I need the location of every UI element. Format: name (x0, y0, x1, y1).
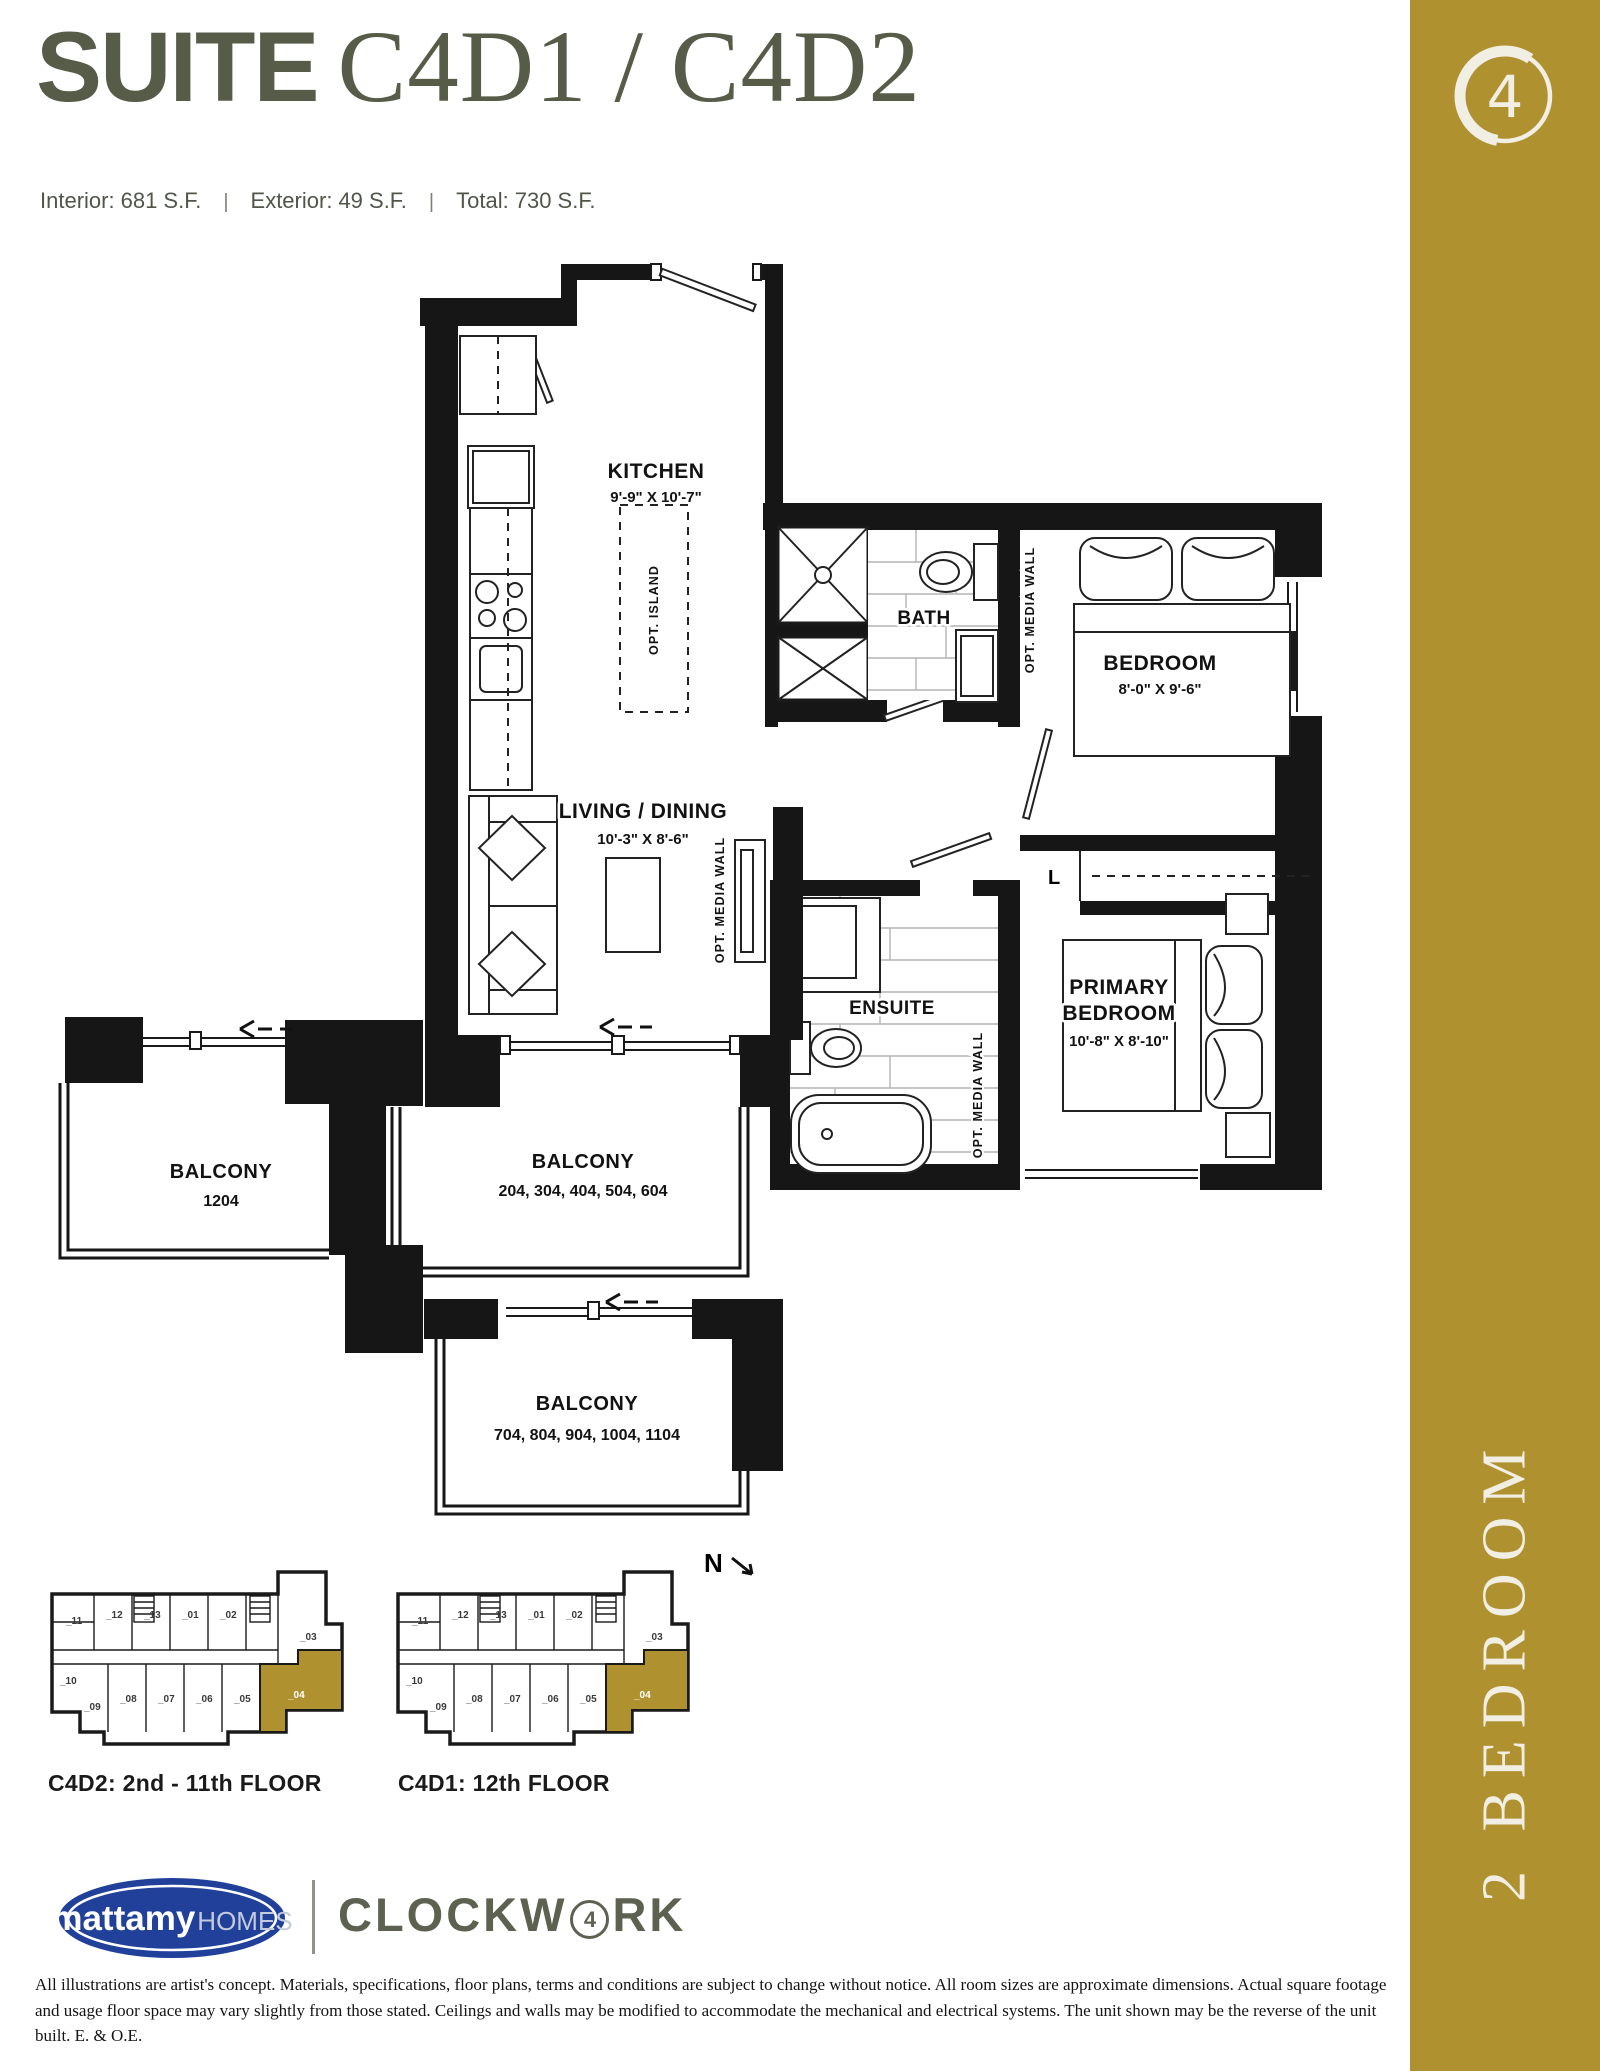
svg-text:_07: _07 (157, 1694, 175, 1705)
coffee-table (606, 858, 660, 952)
north-arrow: N (704, 1548, 752, 1578)
balcony1-units: 1204 (203, 1193, 239, 1210)
balcony2-units: 204, 304, 404, 504, 604 (498, 1183, 667, 1200)
svg-text:_01: _01 (527, 1610, 545, 1621)
title-suite-word: SUITE (36, 11, 318, 122)
svg-text:_05: _05 (579, 1694, 597, 1705)
stat-exterior: Exterior:49 S.F. (251, 188, 407, 214)
toilet-tank (974, 544, 998, 600)
svg-text:_10: _10 (59, 1676, 77, 1687)
svg-text:_09: _09 (429, 1702, 447, 1713)
balcony2-label: BALCONY (532, 1151, 635, 1173)
balcony3-label: BALCONY (536, 1393, 639, 1415)
bed-band (1074, 604, 1290, 632)
stat-interior: Interior:681 S.F. (40, 188, 201, 214)
kitchen-counter (470, 508, 532, 574)
primary-label-1: PRIMARY (1069, 976, 1169, 999)
svg-text:_08: _08 (465, 1694, 483, 1705)
kitchen-label: KITCHEN (608, 460, 705, 483)
svg-text:_12: _12 (451, 1610, 469, 1621)
bathtub (791, 1095, 931, 1173)
floorplan-drawing: OPT. ISLAND KITCHEN 9'-9" X 10'-7" BATH … (40, 250, 1340, 1590)
primary-door-leaf (911, 833, 991, 867)
circle-4-icon: 4 (1453, 44, 1557, 148)
legal-disclaimer: All illustrations are artist's concept. … (35, 1972, 1387, 2049)
arrow-living (600, 1019, 652, 1035)
primary-bed-band (1175, 940, 1201, 1111)
mattamy-logo: mattamyHOMES (50, 1872, 300, 1964)
area-stats: Interior:681 S.F. | Exterior:49 S.F. | T… (40, 188, 595, 214)
keyplate-caption-c4d1: C4D1: 12th FLOOR (398, 1770, 610, 1797)
bedroom-label: BEDROOM (1103, 652, 1216, 675)
pillow (1206, 1030, 1262, 1108)
svg-text:4: 4 (1487, 63, 1524, 131)
windows (143, 264, 1297, 1319)
primary-label-2: BEDROOM (1062, 1002, 1175, 1025)
balcony1-label: BALCONY (170, 1161, 273, 1183)
svg-text:_12: _12 (105, 1610, 123, 1621)
media-wall (773, 807, 803, 1040)
primary-bed (1063, 940, 1175, 1111)
svg-text:_13: _13 (489, 1610, 507, 1621)
kitchen-counter-lower (470, 700, 532, 790)
svg-text:_01: _01 (181, 1610, 199, 1621)
svg-text:_13: _13 (143, 1610, 161, 1621)
logo-divider (312, 1880, 315, 1954)
ensuite-fixtures (790, 896, 998, 1173)
entry-door-leaf (660, 269, 756, 311)
kitchen-dims: 9'-9" X 10'-7" (610, 489, 701, 506)
svg-text:_06: _06 (541, 1694, 559, 1705)
opt-media-wall-living-label: OPT. MEDIA WALL (713, 837, 727, 963)
primary-dims: 10'-8" X 8'-10" (1069, 1033, 1169, 1050)
opt-media-wall-bedroom-label: OPT. MEDIA WALL (1023, 547, 1037, 673)
svg-text:_09: _09 (83, 1702, 101, 1713)
kitchen-fixtures: OPT. ISLAND (460, 336, 688, 790)
bedroom-dims: 8'-0" X 9'-6" (1118, 681, 1201, 698)
stat-separator: | (223, 191, 228, 214)
fridge (468, 446, 534, 508)
svg-text:_05: _05 (233, 1694, 251, 1705)
clockwork-wordmark: CLOCKW 4 RK (338, 1887, 686, 1942)
wordmark-pre: CLOCKW (338, 1887, 567, 1942)
circled-4-icon: 4 (570, 1900, 609, 1939)
title-suite-codes: C4D1 / C4D2 (338, 10, 921, 124)
keyplate-c4d2: _11 _12 _13 _01 _02 _03 _10 _09 _08 _07 … (42, 1562, 362, 1762)
svg-text:_04: _04 (287, 1690, 305, 1701)
opt-media-wall-ensuite-label: OPT. MEDIA WALL (971, 1032, 985, 1158)
bedroom-furniture (1074, 538, 1290, 756)
bath-label: BATH (897, 608, 950, 629)
ensuite-label: ENSUITE (849, 998, 935, 1019)
primary-furniture (1063, 894, 1270, 1157)
nightstand (1226, 894, 1268, 934)
pillow (1206, 946, 1262, 1024)
opt-island-label: OPT. ISLAND (647, 565, 661, 655)
keyplate-caption-c4d2: C4D2: 2nd - 11th FLOOR (48, 1770, 322, 1797)
svg-text:_06: _06 (195, 1694, 213, 1705)
svg-text:_03: _03 (645, 1632, 663, 1643)
walls (65, 264, 1322, 1471)
nightstand (1226, 1113, 1270, 1157)
north-arrow-icon (732, 1558, 752, 1574)
tv (741, 850, 753, 952)
keyplate-c4d1: _11 _12 _13 _01 _02 _03 _10 _09 _08 _07 … (388, 1562, 708, 1762)
linen-closet-label: L (1048, 867, 1060, 889)
svg-text:_11: _11 (65, 1616, 83, 1627)
bedroom-door-leaf (1023, 729, 1052, 819)
logo-suffix: HOMES (197, 1906, 292, 1936)
number-4-badge: 4 (1410, 0, 1600, 200)
svg-text:_02: _02 (565, 1610, 583, 1621)
arrow-left-balcony (240, 1021, 292, 1037)
svg-text:_07: _07 (503, 1694, 521, 1705)
svg-text:_02: _02 (219, 1610, 237, 1621)
bedroom-closet: L (1048, 851, 1310, 901)
stat-separator: | (429, 191, 434, 214)
bath-vanity (956, 630, 998, 702)
balcony3-units: 704, 804, 904, 1004, 1104 (494, 1427, 680, 1444)
svg-text:_11: _11 (411, 1616, 429, 1627)
logo-brand: mattamy (51, 1899, 195, 1938)
living-label: LIVING / DINING (559, 800, 728, 823)
living-dims: 10'-3" X 8'-6" (597, 831, 688, 848)
bath-fixtures (778, 527, 998, 702)
sidebar-category-label: 2 BEDROOM (1410, 1400, 1600, 1940)
svg-text:_08: _08 (119, 1694, 137, 1705)
svg-text:_04: _04 (633, 1690, 651, 1701)
stat-total: Total:730 S.F. (456, 188, 595, 214)
wordmark-post: RK (612, 1887, 686, 1942)
page-title: SUITEC4D1 / C4D2 (36, 16, 921, 119)
svg-text:_10: _10 (405, 1676, 423, 1687)
svg-text:_03: _03 (299, 1632, 317, 1643)
